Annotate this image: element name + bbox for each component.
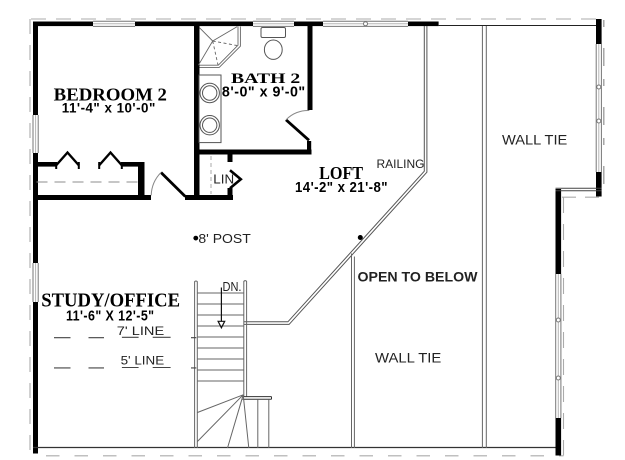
svg-text:11'-6" X 12'-5": 11'-6" X 12'-5" [66,309,155,325]
svg-text:WALL TIE: WALL TIE [502,133,567,148]
svg-text:8' POST: 8' POST [198,231,250,246]
svg-text:8'-0" x 9'-0": 8'-0" x 9'-0" [222,85,306,101]
svg-text:DN.: DN. [223,279,242,294]
svg-text:7' LINE: 7' LINE [117,324,164,338]
svg-text:14'-2" x 21'-8": 14'-2" x 21'-8" [295,179,388,196]
svg-text:11'-4" x 10'-0": 11'-4" x 10'-0" [62,100,156,116]
svg-text:OPEN TO BELOW: OPEN TO BELOW [358,269,478,284]
svg-text:LIN: LIN [213,173,234,187]
svg-text:5' LINE: 5' LINE [121,353,165,367]
svg-text:WALL TIE: WALL TIE [375,350,441,365]
svg-text:RAILING: RAILING [377,157,425,171]
